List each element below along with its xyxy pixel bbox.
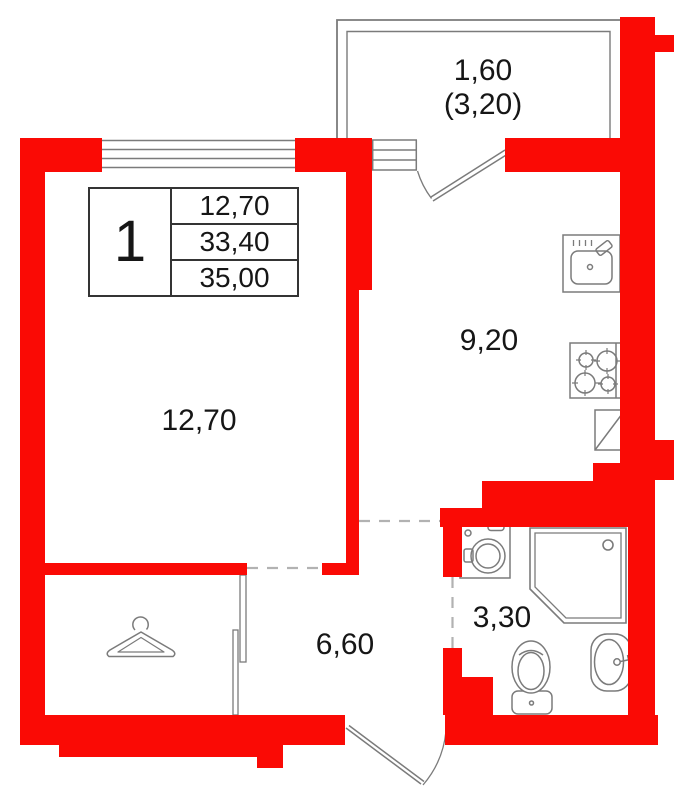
plan-linework <box>0 0 674 812</box>
washing-machine-icon <box>460 525 510 579</box>
kitchen-sink-icon <box>563 235 620 292</box>
closet-sliding-partition <box>233 575 246 715</box>
bathroom-area-label: 3,30 <box>473 602 531 634</box>
apartment-info-table: 1 12,70 33,40 35,00 <box>88 187 299 297</box>
wall-bottom-left-step <box>59 745 283 757</box>
total-area-with-balcony-value: 35,00 <box>172 261 297 295</box>
wall-bathroom-left-step <box>462 677 493 715</box>
total-area-value: 33,40 <box>172 225 297 261</box>
wall-left <box>20 138 45 745</box>
apartment-area-rows: 12,70 33,40 35,00 <box>172 189 297 295</box>
balcony-door <box>418 150 508 201</box>
wall-top-kitchen <box>505 138 625 172</box>
wall-bathroom-left-upper <box>443 527 462 577</box>
wall-bathroom-top <box>440 508 500 527</box>
living-room-area-label: 12,70 <box>161 405 236 437</box>
clothes-hanger-icon <box>107 617 175 657</box>
wall-step-2 <box>482 481 655 527</box>
balcony-door-window <box>372 140 417 170</box>
wall-living-bottom <box>20 563 247 575</box>
wall-middle-lower <box>346 290 359 565</box>
wall-bottom-left-tab <box>257 745 283 768</box>
wall-middle-upper <box>346 172 372 290</box>
hallway-area-label: 6,60 <box>316 629 374 661</box>
kitchen-area-label: 9,20 <box>460 325 518 357</box>
balcony-area-label: 1,60 (3,20) <box>444 54 522 122</box>
balcony-area-value: 1,60 <box>444 54 522 88</box>
shower-cabin-icon <box>530 528 626 623</box>
wall-right-upper <box>620 17 655 480</box>
apartment-number: 1 <box>90 189 172 295</box>
wall-top-middle <box>295 138 372 172</box>
living-area-value: 12,70 <box>172 189 297 225</box>
living-room-window <box>102 141 295 168</box>
floor-plan: 1 12,70 33,40 35,00 12,70 9,20 6,60 3,30… <box>0 0 674 812</box>
wall-right-tab-middle <box>655 440 674 480</box>
wall-top-left-corner <box>20 138 102 172</box>
toilet-icon <box>512 641 552 714</box>
bathroom-sink-icon <box>591 634 631 691</box>
wall-bottom-right <box>445 715 658 745</box>
wall-bathroom-left-lower <box>443 648 462 715</box>
wall-right-tab-top <box>655 35 674 52</box>
wall-middle-foot <box>322 563 359 575</box>
entrance-door <box>346 726 446 786</box>
wall-bottom-left <box>20 715 345 745</box>
stove-icon <box>570 343 623 398</box>
balcony-area-with-coefficient: (3,20) <box>444 88 522 122</box>
